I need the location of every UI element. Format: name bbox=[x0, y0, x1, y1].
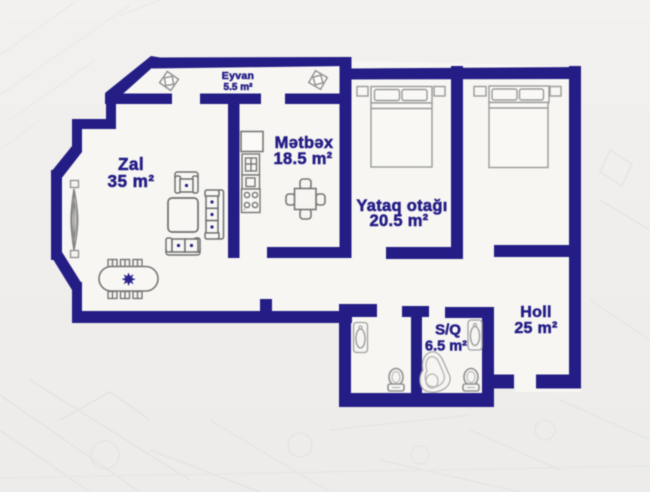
svg-text:35 m²: 35 m² bbox=[108, 171, 155, 191]
svg-text:6.5 m²: 6.5 m² bbox=[425, 339, 467, 355]
svg-text:S/Q: S/Q bbox=[435, 322, 461, 339]
svg-text:5.5 m²: 5.5 m² bbox=[224, 82, 254, 93]
svg-text:Eyvan: Eyvan bbox=[222, 70, 254, 82]
svg-text:Holl: Holl bbox=[520, 304, 551, 321]
svg-text:18.5 m²: 18.5 m² bbox=[274, 150, 333, 168]
svg-text:20.5 m²: 20.5 m² bbox=[370, 212, 429, 230]
svg-text:25 m²: 25 m² bbox=[514, 320, 557, 337]
